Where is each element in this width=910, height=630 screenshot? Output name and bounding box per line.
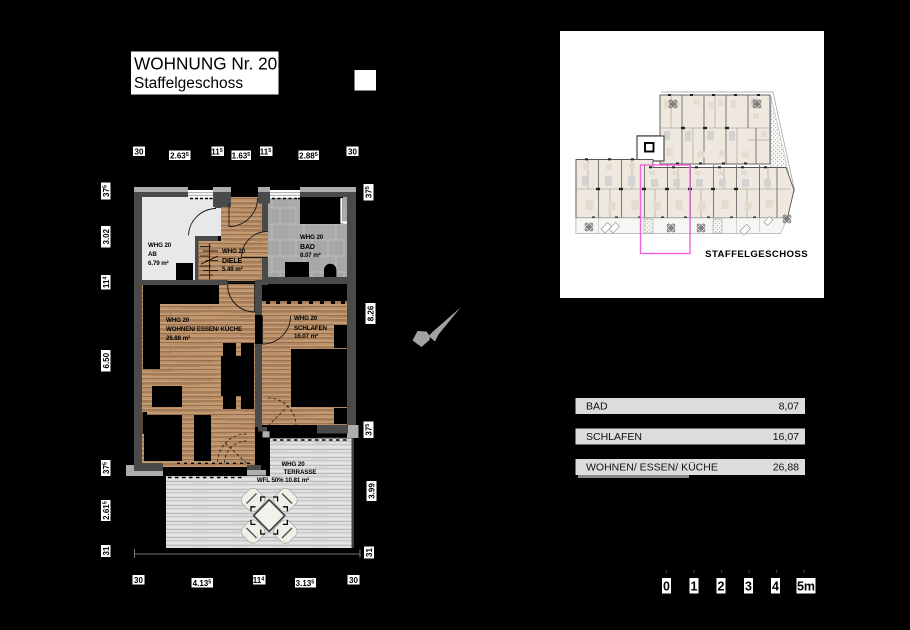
svg-text:1: 1 [691, 580, 698, 594]
svg-text:AB: AB [148, 251, 157, 258]
svg-text:8,07: 8,07 [779, 401, 800, 413]
svg-text:WHG 20: WHG 20 [148, 242, 172, 249]
svg-text:30: 30 [349, 576, 358, 585]
svg-text:STAFFELGESCHOSS: STAFFELGESCHOSS [705, 249, 808, 260]
svg-text:30: 30 [135, 148, 144, 157]
svg-text:WHG 20: WHG 20 [294, 315, 318, 322]
svg-text:WOHNEN/ ESSEN/ KÜCHE: WOHNEN/ ESSEN/ KÜCHE [586, 462, 718, 474]
svg-text:8.26: 8.26 [367, 305, 376, 321]
svg-text:DIELE: DIELE [222, 258, 243, 265]
svg-text:WHG 20: WHG 20 [281, 461, 305, 468]
svg-text:6.50: 6.50 [102, 352, 111, 368]
svg-text:5.49 m²: 5.49 m² [222, 266, 243, 273]
svg-text:WHG 20: WHG 20 [300, 234, 324, 241]
svg-text:31: 31 [102, 546, 111, 555]
svg-text:WHG 20: WHG 20 [166, 317, 190, 324]
svg-text:3: 3 [745, 580, 752, 594]
svg-text:26,88: 26,88 [773, 462, 799, 474]
svg-text:31: 31 [365, 548, 374, 557]
svg-text:SCHLAFEN: SCHLAFEN [586, 431, 642, 443]
svg-text:BAD: BAD [300, 244, 315, 251]
svg-text:Staffelgeschoss: Staffelgeschoss [134, 75, 243, 92]
svg-text:0: 0 [663, 580, 670, 594]
svg-text:BAD: BAD [586, 401, 608, 413]
svg-text:3.99: 3.99 [368, 483, 377, 499]
svg-text:SCHLAFEN: SCHLAFEN [294, 325, 328, 332]
svg-text:WHG 20: WHG 20 [222, 248, 246, 255]
svg-text:TERRASSE: TERRASSE [284, 469, 317, 476]
svg-text:3.02: 3.02 [102, 228, 111, 244]
svg-text:6.79 m²: 6.79 m² [148, 260, 169, 267]
svg-text:4: 4 [772, 580, 779, 594]
svg-text:2: 2 [718, 580, 725, 594]
svg-text:30: 30 [134, 576, 143, 585]
svg-text:30: 30 [348, 148, 357, 157]
svg-text:26.88 m²: 26.88 m² [166, 335, 190, 342]
svg-text:8.07 m²: 8.07 m² [300, 252, 321, 259]
svg-text:5m: 5m [797, 580, 815, 594]
svg-text:WOHNEN/ ESSEN/ KÜCHE: WOHNEN/ ESSEN/ KÜCHE [166, 326, 242, 333]
svg-text:WOHNUNG Nr. 20: WOHNUNG Nr. 20 [134, 54, 277, 74]
svg-text:16,07: 16,07 [773, 431, 799, 443]
svg-text:16.07 m²: 16.07 m² [294, 333, 318, 340]
svg-text:WFL 50% 10.81 m²: WFL 50% 10.81 m² [257, 477, 309, 484]
